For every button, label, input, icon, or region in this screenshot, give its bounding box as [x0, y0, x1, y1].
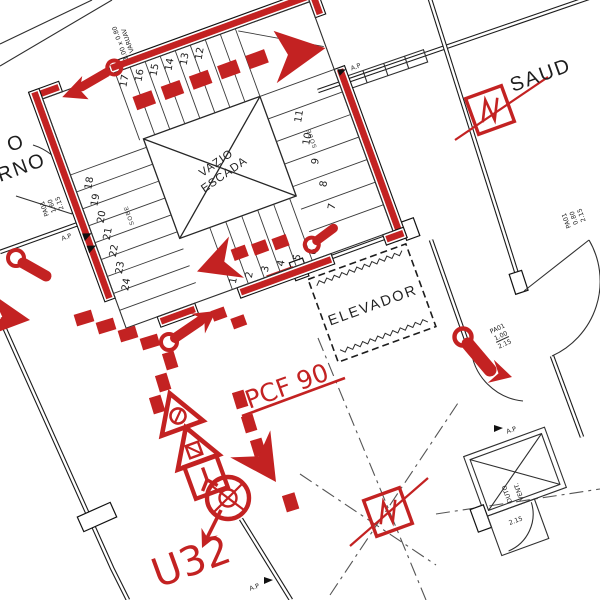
sobe-label: SOBE — [123, 204, 136, 225]
room-label-left-line2: RNO — [0, 149, 49, 187]
step-number: 21 — [102, 227, 115, 241]
door-hinge-marker — [494, 425, 503, 432]
door-right-label: PA01 0.80 2.15 — [561, 207, 588, 230]
step-number: 19 — [89, 193, 102, 207]
step-number: 3 — [260, 265, 272, 273]
door-right — [509, 240, 600, 356]
door-lobby-label: PA01 1.00 2.15 — [489, 323, 513, 351]
duct-label-2: VENT. — [513, 482, 526, 501]
duct-door-arc — [496, 502, 545, 551]
stair-core: VAZIO ESCADA 17 16 — [10, 0, 430, 374]
svg-text:PCF 90: PCF 90 — [241, 358, 332, 415]
step-number: 9 — [310, 157, 322, 165]
door-left-label: PA01 1.60 2.15 — [39, 195, 66, 218]
step-number: 16 — [133, 68, 146, 82]
u32-label: U32 — [146, 527, 237, 598]
duct-door-height: 2.15 — [508, 515, 524, 526]
ap-label: A.P — [506, 426, 518, 436]
step-number: 1 — [228, 277, 240, 285]
duct-label-1: DUTO — [501, 484, 514, 504]
step-number: 2 — [244, 271, 256, 279]
fire-escape-plan: ELEVADOR DUTO VENT. 2.15 — [0, 0, 600, 600]
step-number: 11 — [293, 109, 306, 123]
step-number: 14 — [164, 57, 177, 71]
step-number: 5 — [292, 253, 304, 261]
step-number: 22 — [108, 244, 121, 258]
step-number: 15 — [148, 63, 161, 77]
ap-label: A.P — [350, 62, 362, 72]
step-number: 18 — [83, 176, 96, 190]
step-number: 17 — [118, 74, 131, 88]
step-number: 4 — [276, 259, 288, 267]
step-number: 24 — [120, 277, 133, 291]
vent-duct-shaft: DUTO VENT. 2.15 — [452, 427, 580, 560]
room-label-saud: SAUD — [507, 54, 574, 96]
perimeter-walls — [0, 0, 600, 600]
elevator-label: ELEVADOR — [326, 282, 420, 329]
step-number: 7 — [326, 202, 338, 210]
axis-lines — [300, 338, 600, 600]
fire-damper-icon — [350, 478, 428, 546]
step-number: 20 — [96, 210, 109, 224]
floor-plan-screenshot: ELEVADOR DUTO VENT. 2.15 — [0, 0, 600, 600]
step-number: 23 — [114, 260, 127, 274]
elevator-shaft: ELEVADOR — [265, 218, 451, 375]
ap-label: A.P — [61, 233, 73, 243]
step-number: 12 — [194, 46, 207, 60]
room-label-left-line1: O — [4, 130, 28, 157]
step-number: 8 — [318, 180, 330, 188]
door-hinge-marker — [264, 577, 273, 584]
ap-label: A.P — [249, 583, 261, 593]
step-number: 13 — [179, 52, 192, 66]
